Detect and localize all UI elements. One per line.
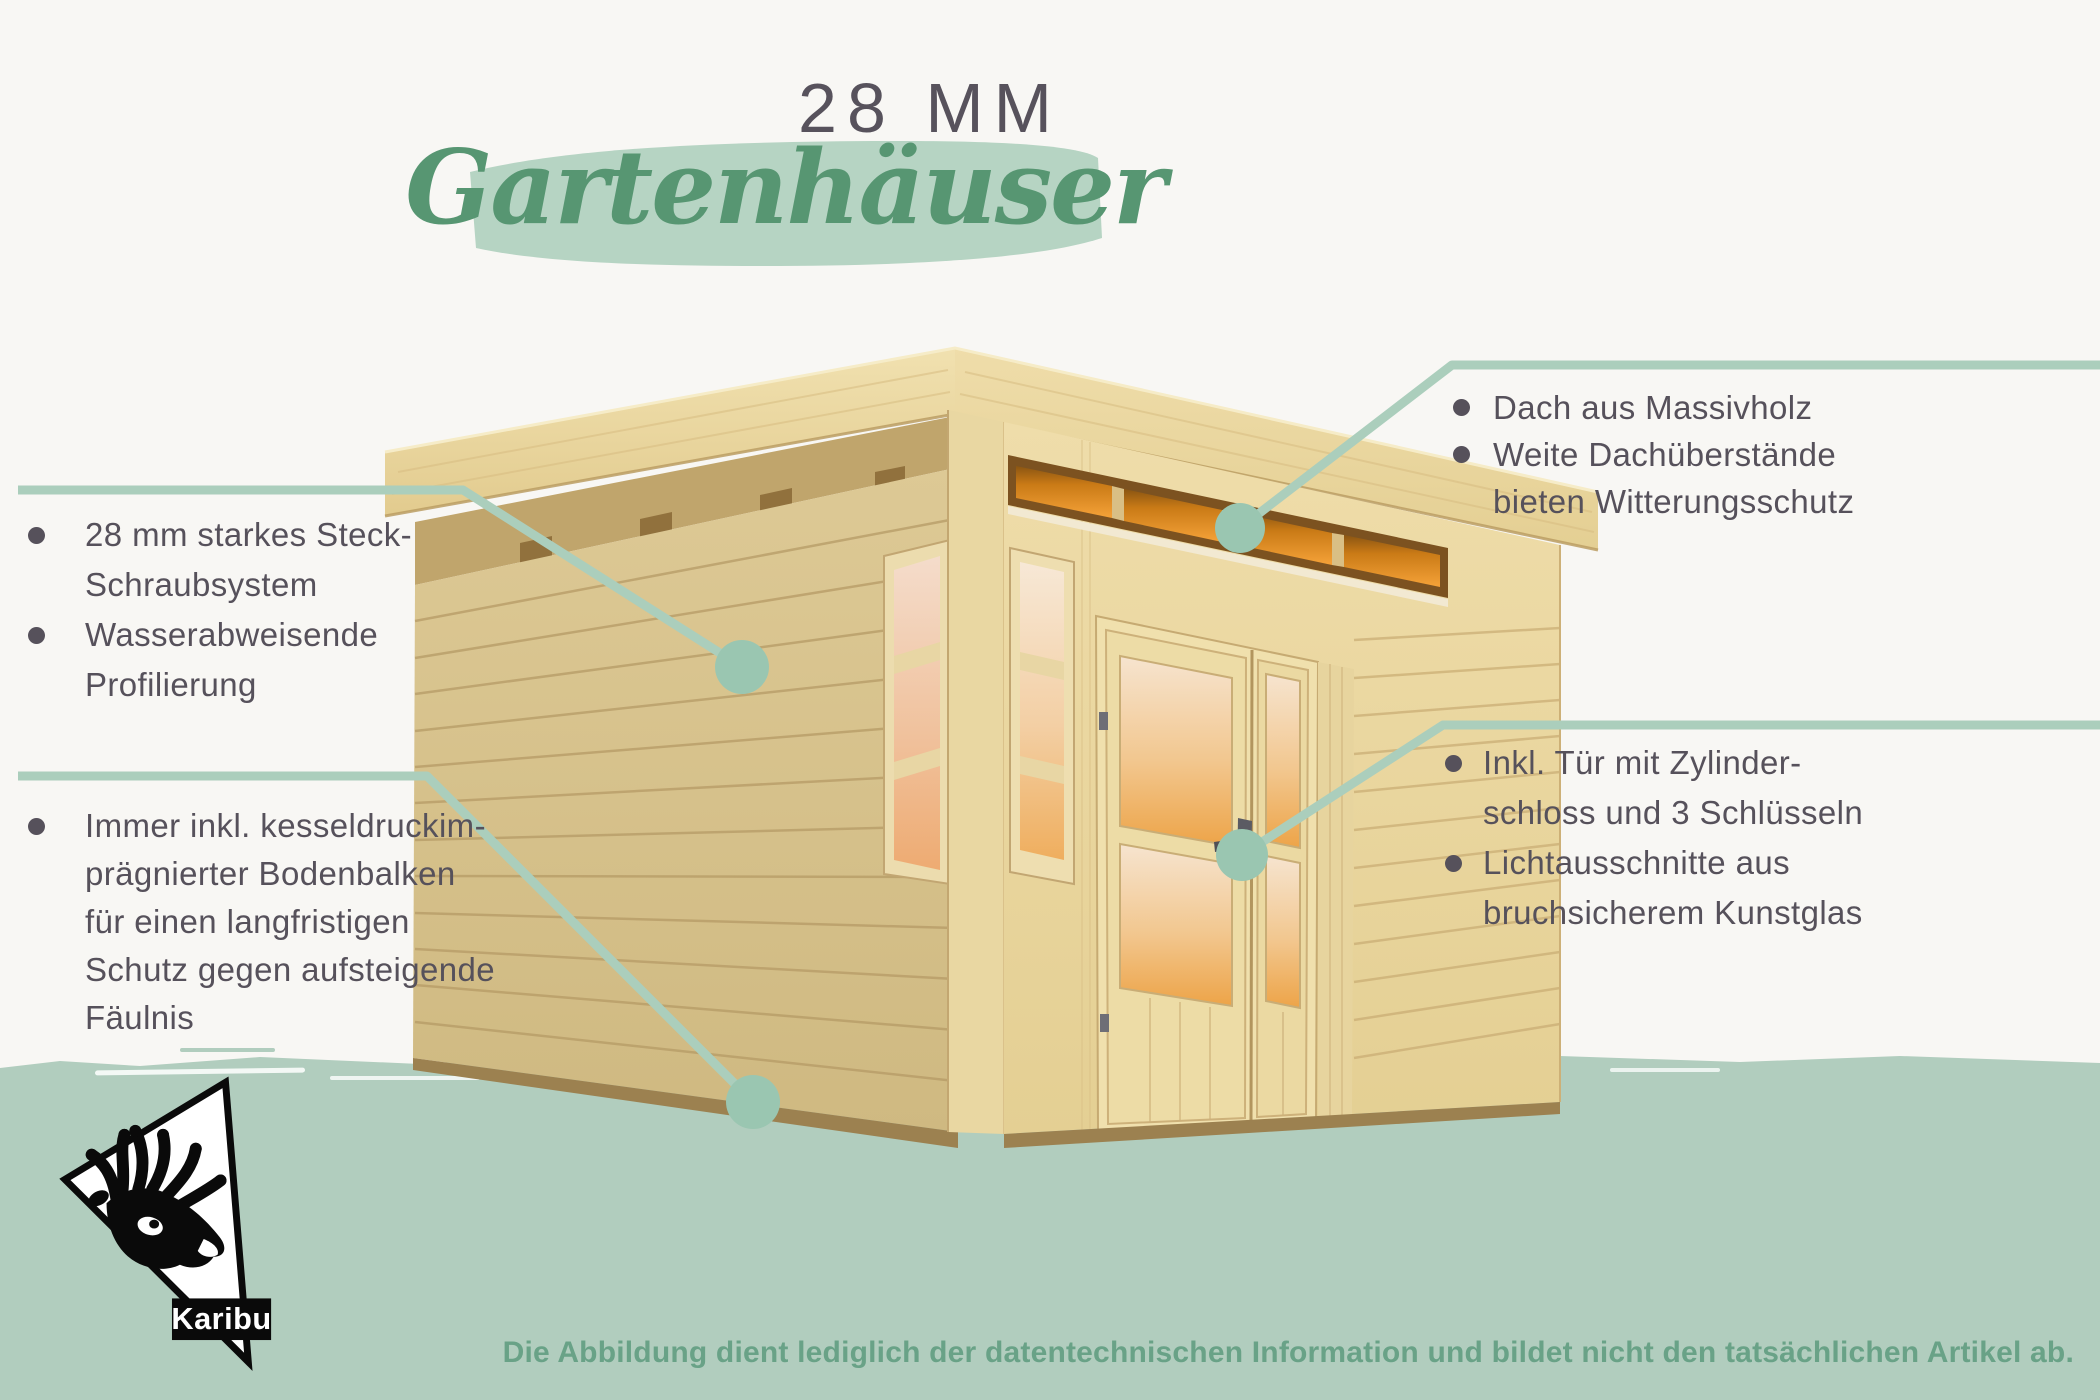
disclaimer-text: Die Abbildung dient lediglich der datent… — [503, 1336, 2074, 1370]
callout-line-item: bruchsicherem Kunstglas — [1483, 888, 1863, 938]
callout-line-item: 28 mm starkes Steck- — [85, 510, 412, 560]
callout-line-item: bieten Witterungsschutz — [1493, 478, 1854, 525]
callout-text: Fäulnis — [85, 999, 194, 1036]
callout-line-item: Schutz gegen aufsteigende — [85, 946, 495, 994]
callout-text: Dach aus Massivholz — [1493, 389, 1812, 426]
infographic-page: 28 MM Gartenhäuser 28 mm starkes Steck- … — [0, 0, 2100, 1400]
callout-line-item: Weite Dachüberstände — [1493, 431, 1854, 478]
callout-text-right-bottom: Inkl. Tür mit Zylinder- schloss und 3 Sc… — [1483, 738, 1863, 938]
title-product-label: Gartenhäuser — [405, 128, 1165, 248]
callout-text: 28 mm starkes Steck- — [85, 516, 412, 553]
karibu-logo: Karibu — [55, 1072, 283, 1392]
bullet-icon — [1445, 755, 1462, 772]
callout-text: bruchsicherem Kunstglas — [1483, 894, 1863, 931]
callout-text: Lichtausschnitte aus — [1483, 844, 1790, 881]
bullet-icon — [1445, 855, 1462, 872]
callout-line-item: Wasserabweisende — [85, 610, 412, 660]
bullet-icon — [1453, 399, 1470, 416]
callout-line-item: Schraubsystem — [85, 560, 412, 610]
callout-text: schloss und 3 Schlüsseln — [1483, 794, 1863, 831]
callout-line-item: Profilierung — [85, 660, 412, 710]
bullet-icon — [28, 818, 45, 835]
callout-text: bieten Witterungsschutz — [1493, 483, 1854, 520]
logo-wordmark: Karibu — [171, 1301, 271, 1336]
callout-line-item: Lichtausschnitte aus — [1483, 838, 1863, 888]
callout-text: für einen langfristigen — [85, 903, 410, 940]
bullet-icon — [28, 527, 45, 544]
callout-line-item: schloss und 3 Schlüsseln — [1483, 788, 1863, 838]
callout-text: Inkl. Tür mit Zylinder- — [1483, 744, 1801, 781]
callout-text: Schraubsystem — [85, 566, 318, 603]
callout-dot-side-wall — [715, 640, 769, 694]
callout-text: Profilierung — [85, 666, 257, 703]
callout-text-right-top: Dach aus Massivholz Weite Dachüberstände… — [1493, 384, 1854, 525]
bullet-icon — [28, 627, 45, 644]
callout-text: Immer inkl. kesseldruckim- — [85, 807, 486, 844]
callout-dot-floor-beam — [726, 1075, 780, 1129]
callout-text-left-bottom: Immer inkl. kesseldruckim- prägnierter B… — [85, 802, 495, 1042]
callout-line-item: Fäulnis — [85, 994, 495, 1042]
callout-line-item: Inkl. Tür mit Zylinder- — [1483, 738, 1863, 788]
callout-line-item: Dach aus Massivholz — [1493, 384, 1854, 431]
callout-dot-door-handle — [1216, 829, 1268, 881]
callout-text: Weite Dachüberstände — [1493, 436, 1836, 473]
callout-text: Wasserabweisende — [85, 616, 378, 653]
callout-text-left-top: 28 mm starkes Steck- Schraubsystem Wasse… — [85, 510, 412, 710]
callout-text: prägnierter Bodenbalken — [85, 855, 456, 892]
bullet-icon — [1453, 446, 1470, 463]
callout-line-item: Immer inkl. kesseldruckim- — [85, 802, 495, 850]
callout-line-item: für einen langfristigen — [85, 898, 495, 946]
callout-dot-roof — [1215, 503, 1265, 553]
callout-text: Schutz gegen aufsteigende — [85, 951, 495, 988]
callout-line-item: prägnierter Bodenbalken — [85, 850, 495, 898]
